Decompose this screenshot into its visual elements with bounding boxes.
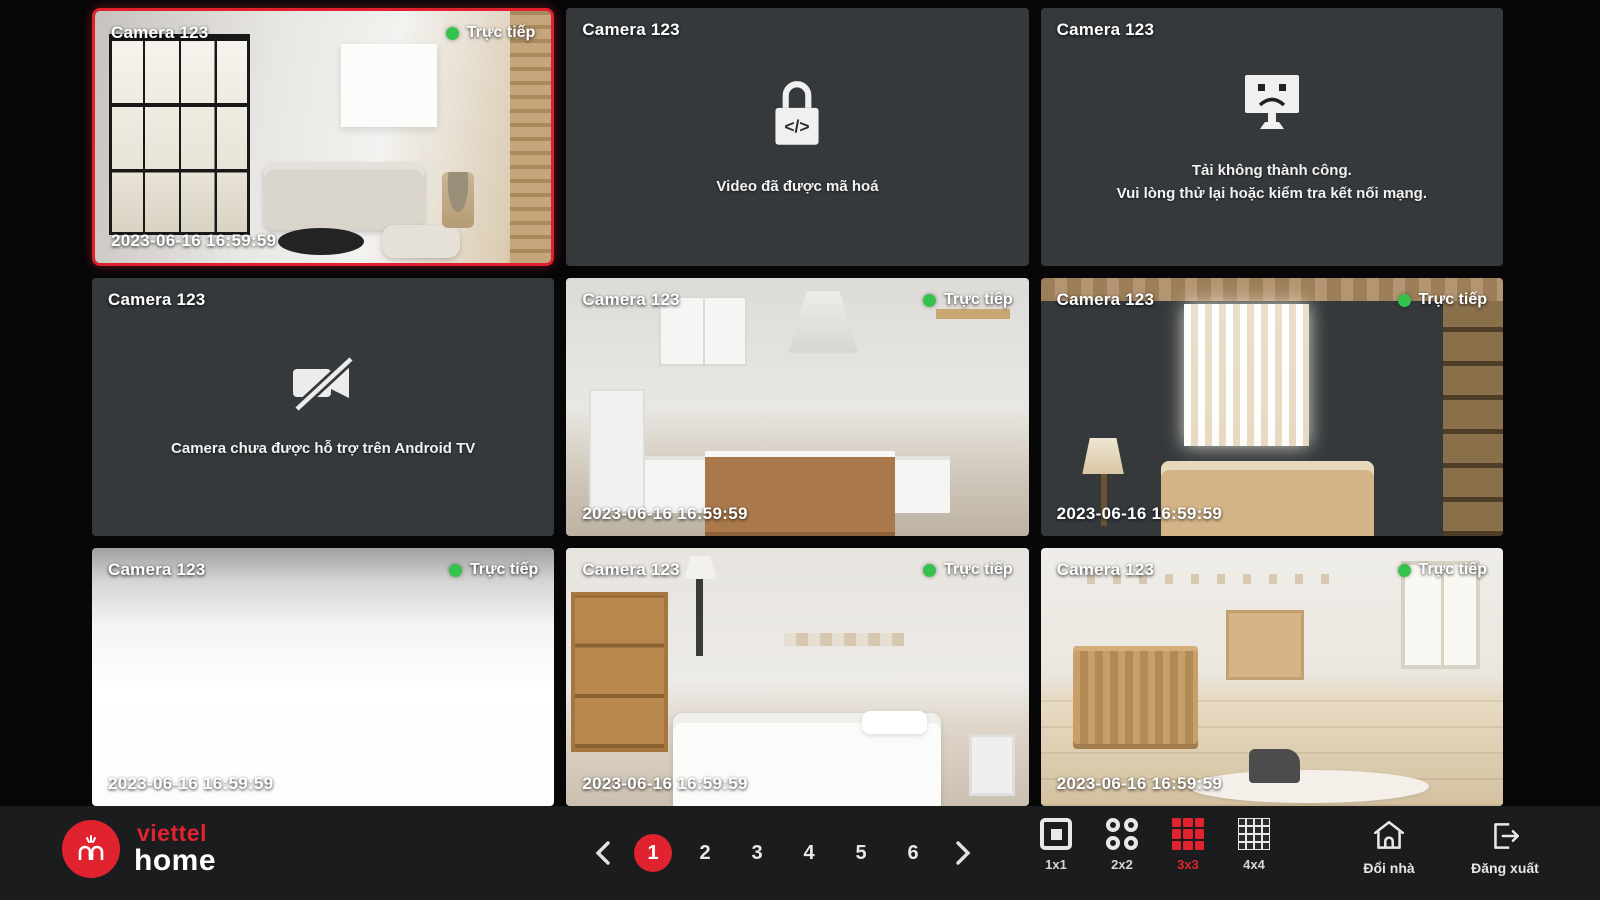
- camera-title: Camera 123: [1057, 560, 1154, 580]
- page-button-3[interactable]: 3: [738, 834, 776, 872]
- camera-tile-8[interactable]: Camera 123 Trực tiếp 2023-06-16 16:59:59: [566, 548, 1028, 806]
- page-button-6[interactable]: 6: [894, 834, 932, 872]
- tile-header: Camera 123 Trực tiếp: [92, 548, 554, 592]
- tile-header: Camera 123 Trực tiếp: [566, 278, 1028, 322]
- timestamp: 2023-06-16 16:59:59: [1057, 774, 1222, 794]
- live-status: Trực tiếp: [449, 561, 539, 579]
- encrypted-message: Video đã được mã hoá: [716, 175, 878, 198]
- camera-tile-1[interactable]: Camera 123 Trực tiếp 2023-06-16 16:59:59: [92, 8, 554, 266]
- prop-shelf: [1443, 301, 1503, 536]
- camera-grid: Camera 123 Trực tiếp 2023-06-16 16:59:59…: [92, 8, 1503, 806]
- layout-label: 2x2: [1111, 857, 1133, 872]
- camera-title: Camera 123: [108, 560, 205, 580]
- logout-icon: [1487, 818, 1523, 854]
- camera-tile-5[interactable]: Camera 123 Trực tiếp 2023-06-16 16:59:59: [566, 278, 1028, 536]
- prop-cart: [969, 734, 1015, 796]
- encrypted-lock-icon: </>: [764, 75, 830, 153]
- live-status-label: Trực tiếp: [467, 24, 536, 42]
- layout-1x1-button[interactable]: 1x1: [1034, 818, 1078, 872]
- viettel-home-logo: viettel home: [62, 820, 216, 878]
- live-status-label: Trực tiếp: [944, 561, 1013, 579]
- live-status-label: Trực tiếp: [470, 561, 539, 579]
- layout-4x4-button[interactable]: 4x4: [1232, 818, 1276, 872]
- camera-tile-7[interactable]: Camera 123 Trực tiếp 2023-06-16 16:59:59: [92, 548, 554, 806]
- layout-3x3-button[interactable]: 3x3: [1166, 818, 1210, 872]
- brand-word-viettel: viettel: [137, 822, 216, 845]
- prop-wall-art: [341, 44, 437, 127]
- prop-plant: [442, 172, 474, 227]
- live-status-label: Trực tiếp: [1419, 561, 1488, 579]
- grid-2x2-icon: [1106, 818, 1138, 850]
- camera-title: Camera 123: [1057, 290, 1154, 310]
- live-status: Trực tiếp: [1398, 561, 1488, 579]
- tile-header: Camera 123 Trực tiếp: [95, 11, 551, 55]
- chevron-left-icon: [593, 840, 613, 866]
- prop-window: [109, 34, 250, 236]
- timestamp: 2023-06-16 16:59:59: [108, 774, 273, 794]
- code-glyph: </>: [785, 117, 810, 137]
- layout-label: 4x4: [1243, 857, 1265, 872]
- camera-title: Camera 123: [582, 20, 679, 40]
- camera-off-icon: [281, 353, 365, 415]
- camera-title: Camera 123: [1057, 20, 1154, 40]
- page-button-2[interactable]: 2: [686, 834, 724, 872]
- live-status: Trực tiếp: [446, 24, 536, 42]
- error-message-line2: Vui lòng thử lại hoặc kiểm tra kết nối m…: [1117, 182, 1427, 205]
- timestamp: 2023-06-16 16:59:59: [111, 231, 276, 251]
- tile-header: Camera 123: [1041, 8, 1503, 52]
- live-dot-icon: [923, 564, 936, 577]
- live-status-label: Trực tiếp: [944, 291, 1013, 309]
- prop-coffee-table: [278, 228, 365, 256]
- tile-header: Camera 123: [92, 278, 554, 322]
- page-button-1[interactable]: 1: [634, 834, 672, 872]
- layout-2x2-button[interactable]: 2x2: [1100, 818, 1144, 872]
- tile-header: Camera 123 Trực tiếp: [566, 548, 1028, 592]
- layout-label: 3x3: [1177, 857, 1199, 872]
- prop-toy-shelf: [784, 633, 904, 646]
- pagination: 1 2 3 4 5 6: [586, 806, 980, 900]
- prop-bed: [1161, 461, 1374, 536]
- prop-dresser: [1226, 610, 1305, 680]
- timestamp: 2023-06-16 16:59:59: [582, 774, 747, 794]
- live-status: Trực tiếp: [923, 291, 1013, 309]
- page-button-5[interactable]: 5: [842, 834, 880, 872]
- layout-switcher: 1x1 2x2 3x3 4x4: [1034, 818, 1276, 872]
- prop-pillow: [862, 711, 927, 734]
- layout-label: 1x1: [1045, 857, 1067, 872]
- home-icon: [1371, 818, 1407, 854]
- unsupported-message: Camera chưa được hỗ trợ trên Android TV: [171, 437, 475, 460]
- grid-3x3-icon: [1172, 818, 1204, 850]
- live-dot-icon: [923, 294, 936, 307]
- prop-bookshelf: [571, 592, 668, 752]
- timestamp: 2023-06-16 16:59:59: [1057, 504, 1222, 524]
- brand-words: viettel home: [134, 822, 216, 876]
- prop-fridge: [589, 389, 644, 513]
- footer-actions: Đổi nhà Đăng xuất: [1354, 818, 1540, 876]
- camera-title: Camera 123: [582, 560, 679, 580]
- live-status: Trực tiếp: [1398, 291, 1488, 309]
- live-status-label: Trực tiếp: [1419, 291, 1488, 309]
- live-dot-icon: [446, 27, 459, 40]
- prop-sofa: [264, 162, 424, 230]
- camera-tile-4[interactable]: Camera 123 Camera chưa được hỗ trợ trên …: [92, 278, 554, 536]
- camera-tile-6[interactable]: Camera 123 Trực tiếp 2023-06-16 16:59:59: [1041, 278, 1503, 536]
- prev-page-button[interactable]: [586, 836, 620, 870]
- sad-monitor-icon: [1235, 69, 1309, 137]
- change-home-label: Đổi nhà: [1363, 860, 1414, 876]
- tile-header: Camera 123: [566, 8, 1028, 52]
- tile-header: Camera 123 Trực tiếp: [1041, 278, 1503, 322]
- viettel-logo-icon: [62, 820, 120, 878]
- camera-title: Camera 123: [582, 290, 679, 310]
- camera-title: Camera 123: [108, 290, 205, 310]
- change-home-button[interactable]: Đổi nhà: [1354, 818, 1424, 876]
- timestamp: 2023-06-16 16:59:59: [582, 504, 747, 524]
- logout-label: Đăng xuất: [1471, 860, 1539, 876]
- chevron-right-icon: [953, 840, 973, 866]
- error-message: Tải không thành công. Vui lòng thử lại h…: [1117, 159, 1427, 206]
- camera-title: Camera 123: [111, 23, 208, 43]
- bottom-bar: viettel home 1 2 3 4 5 6 1x1 2x2: [0, 806, 1600, 900]
- live-dot-icon: [1398, 564, 1411, 577]
- tile-header: Camera 123 Trực tiếp: [1041, 548, 1503, 592]
- brand-word-home: home: [134, 846, 216, 876]
- live-dot-icon: [449, 564, 462, 577]
- prop-tricycle: [1249, 749, 1300, 783]
- grid-4x4-icon: [1238, 818, 1270, 850]
- live-status: Trực tiếp: [923, 561, 1013, 579]
- next-page-button[interactable]: [946, 836, 980, 870]
- prop-lamp: [1082, 438, 1124, 474]
- page-button-4[interactable]: 4: [790, 834, 828, 872]
- prop-pouf: [382, 225, 460, 258]
- error-message-line1: Tải không thành công.: [1117, 159, 1427, 182]
- logout-button[interactable]: Đăng xuất: [1470, 818, 1540, 876]
- prop-window: [1184, 304, 1309, 446]
- camera-tile-9[interactable]: Camera 123 Trực tiếp 2023-06-16 16:59:59: [1041, 548, 1503, 806]
- camera-tile-3[interactable]: Camera 123 Tải không thành công. Vui lòn…: [1041, 8, 1503, 266]
- live-dot-icon: [1398, 294, 1411, 307]
- grid-1x1-icon: [1040, 818, 1072, 850]
- camera-tile-2[interactable]: Camera 123 </> Video đã được mã hoá: [566, 8, 1028, 266]
- prop-crib: [1073, 646, 1198, 749]
